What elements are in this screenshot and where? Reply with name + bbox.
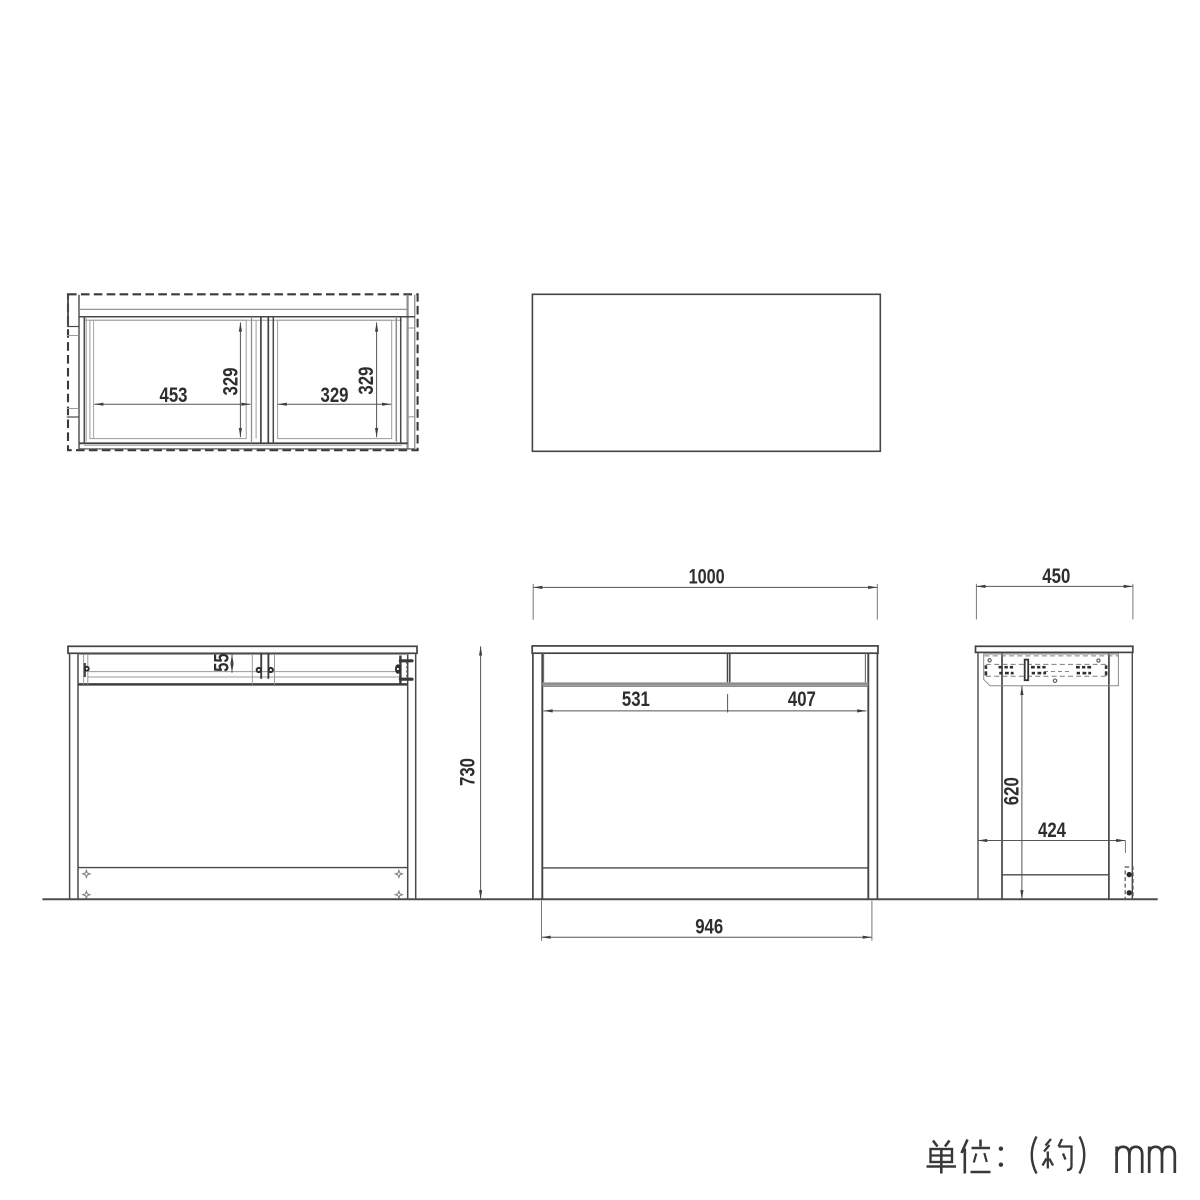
svg-text:730: 730 (456, 758, 479, 786)
svg-text:329: 329 (321, 384, 349, 407)
svg-text:329: 329 (355, 367, 378, 395)
svg-text:55: 55 (211, 653, 234, 672)
svg-text:620: 620 (1000, 777, 1023, 805)
svg-text:329: 329 (220, 368, 243, 396)
svg-text:531: 531 (622, 688, 650, 711)
svg-text:1000: 1000 (689, 566, 725, 589)
svg-text:450: 450 (1042, 565, 1070, 588)
svg-text:424: 424 (1038, 819, 1066, 842)
svg-text:946: 946 (695, 916, 723, 939)
svg-text:453: 453 (160, 384, 188, 407)
svg-text:407: 407 (788, 688, 816, 711)
